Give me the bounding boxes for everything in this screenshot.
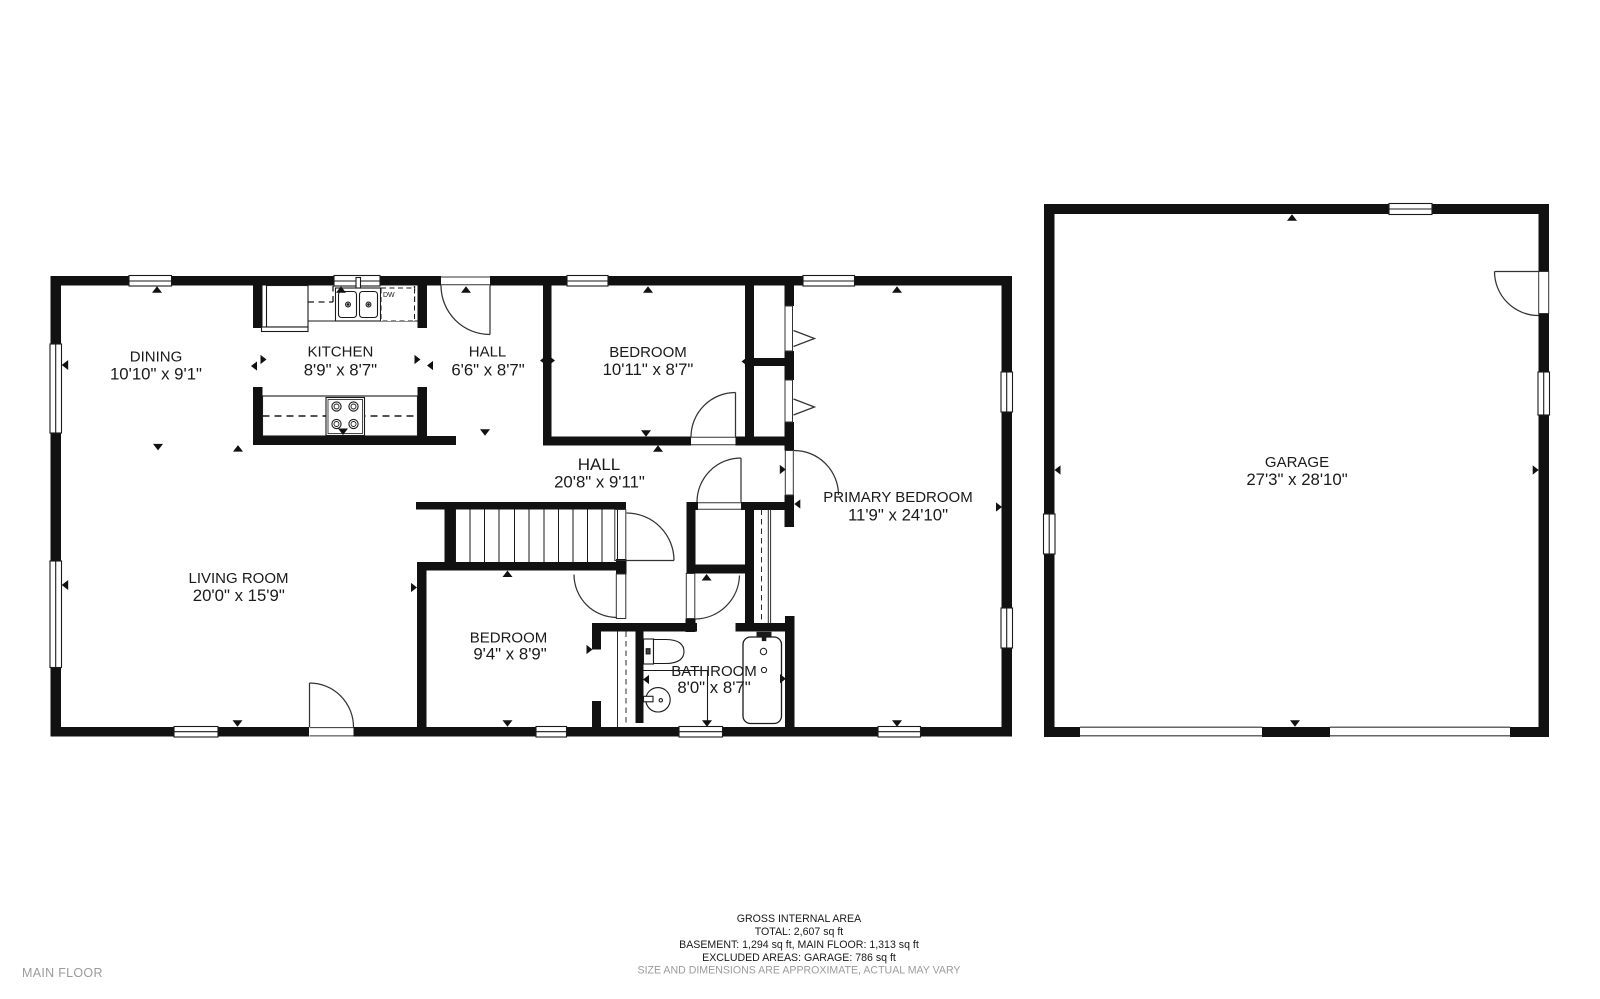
svg-text:BEDROOM: BEDROOM xyxy=(609,344,687,361)
svg-text:20'8" x 9'11": 20'8" x 9'11" xyxy=(554,473,645,492)
svg-text:8'0" x 8'7": 8'0" x 8'7" xyxy=(677,678,750,697)
svg-text:HALL: HALL xyxy=(469,344,507,361)
svg-text:MAIN FLOOR: MAIN FLOOR xyxy=(22,966,103,980)
svg-text:9'4" x 8'9": 9'4" x 8'9" xyxy=(473,645,546,664)
svg-text:10'10" x 9'1": 10'10" x 9'1" xyxy=(110,365,202,384)
svg-text:8'9" x 8'7": 8'9" x 8'7" xyxy=(304,361,377,380)
svg-text:20'0" x 15'9": 20'0" x 15'9" xyxy=(193,586,285,605)
svg-text:6'6" x 8'7": 6'6" x 8'7" xyxy=(451,361,524,380)
svg-text:KITCHEN: KITCHEN xyxy=(307,344,373,361)
svg-text:SIZE AND DIMENSIONS ARE APPROX: SIZE AND DIMENSIONS ARE APPROXIMATE, ACT… xyxy=(638,965,961,977)
svg-text:10'11" x 8'7": 10'11" x 8'7" xyxy=(603,360,694,379)
svg-text:11'9" x 24'10": 11'9" x 24'10" xyxy=(848,506,948,525)
svg-text:BASEMENT: 1,294 sq ft, MAIN FL: BASEMENT: 1,294 sq ft, MAIN FLOOR: 1,313… xyxy=(679,939,919,951)
svg-text:LIVING ROOM: LIVING ROOM xyxy=(188,570,288,587)
svg-text:27'3" x 28'10": 27'3" x 28'10" xyxy=(1246,470,1347,489)
svg-text:PRIMARY BEDROOM: PRIMARY BEDROOM xyxy=(823,489,972,506)
svg-text:DW: DW xyxy=(383,292,395,299)
svg-text:HALL: HALL xyxy=(578,455,621,474)
svg-text:EXCLUDED AREAS: GARAGE: 786 sq: EXCLUDED AREAS: GARAGE: 786 sq ft xyxy=(702,952,896,964)
svg-text:GARAGE: GARAGE xyxy=(1265,454,1329,471)
svg-text:DINING: DINING xyxy=(130,349,183,366)
svg-text:TOTAL: 2,607 sq ft: TOTAL: 2,607 sq ft xyxy=(755,926,844,938)
svg-text:GROSS INTERNAL AREA: GROSS INTERNAL AREA xyxy=(737,913,862,925)
